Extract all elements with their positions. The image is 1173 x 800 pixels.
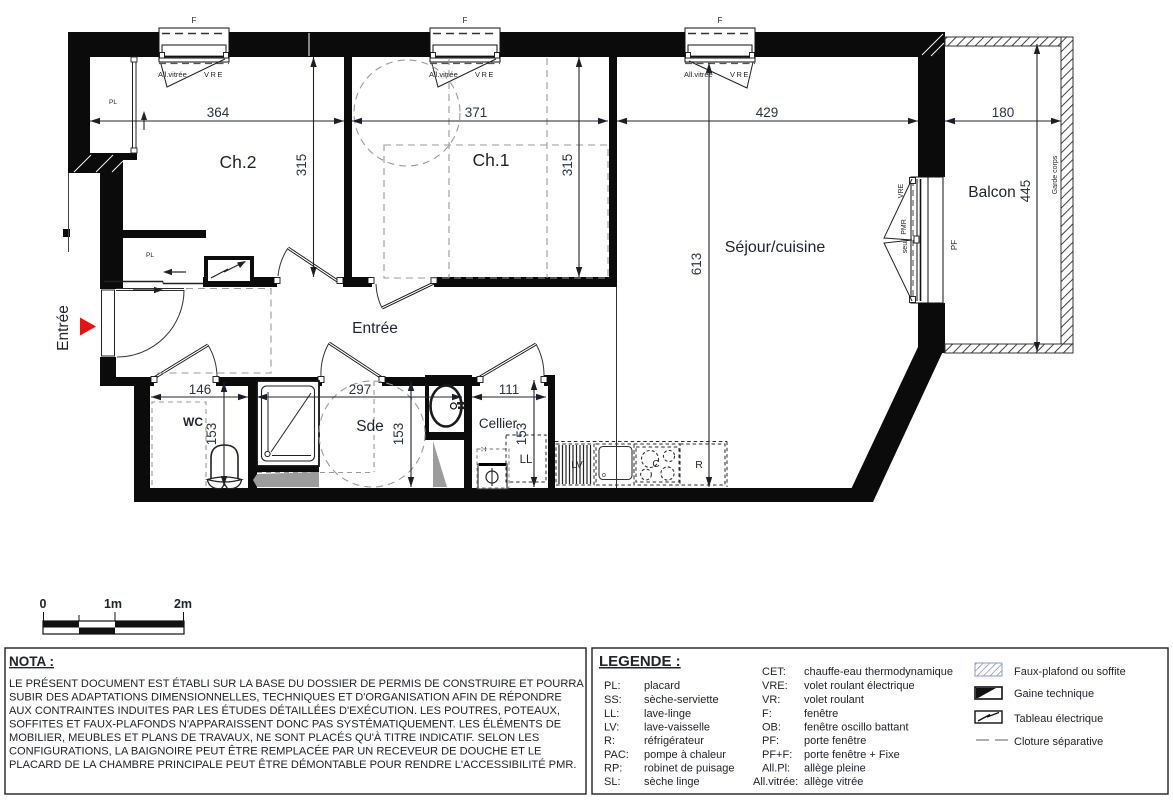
svg-text:Entrée: Entrée [55,305,72,351]
svg-text:F: F [718,16,723,25]
svg-text:allège vitrée: allège vitrée [804,776,863,788]
svg-text:AUX CONTRAINTES INDUITES PAR L: AUX CONTRAINTES INDUITES PAR LES ÉTUDES … [9,704,560,717]
svg-text:CONFIGURATIONS, LA BAIGNOIRE P: CONFIGURATIONS, LA BAIGNOIRE PEUT ÊTRE R… [9,745,541,758]
svg-text:seuil: seuil [902,238,909,253]
svg-text:Tableau électrique: Tableau électrique [1014,713,1103,725]
svg-text:PF+F:: PF+F: [762,749,792,761]
svg-text:153: 153 [204,423,219,446]
svg-text:LV:: LV: [604,722,619,734]
svg-text:SS:: SS: [604,694,622,706]
svg-text:chauffe-eau thermodynamique: chauffe-eau thermodynamique [804,666,953,678]
svg-text:PAC:: PAC: [604,749,629,761]
svg-text:All.vitrée: All.vitrée [158,70,187,79]
svg-text:Sde: Sde [356,418,384,435]
svg-text:fenêtre: fenêtre [804,708,838,720]
svg-text:lave-vaisselle: lave-vaisselle [644,722,710,734]
svg-text:VRE: VRE [204,70,224,79]
svg-text:PL: PL [146,252,154,259]
svg-text:F:: F: [762,708,772,720]
svg-text:sèche-serviette: sèche-serviette [644,694,719,706]
svg-text:LEGENDE :: LEGENDE : [599,653,681,670]
svg-text:1m: 1m [104,597,122,611]
svg-text:VRE:: VRE: [762,680,788,692]
svg-text:SUBIR DES ADAPTATIONS DIMENSIO: SUBIR DES ADAPTATIONS DIMENSIONNELLES, T… [9,691,562,704]
svg-text:Faux-plafond ou soffite: Faux-plafond ou soffite [1014,666,1126,678]
svg-text:NOTA :: NOTA : [9,654,54,669]
svg-text:371: 371 [465,105,488,120]
svg-text:F: F [192,16,197,25]
svg-text:SOFFITES ET FAUX-PLAFONDS N'AP: SOFFITES ET FAUX-PLAFONDS N'APPARAISSENT… [9,718,561,731]
svg-text:PLACARD DE LA CHAMBRE PRINCIPA: PLACARD DE LA CHAMBRE PRINCIPALE PEUT ÊT… [9,758,576,771]
svg-text:Garde corps: Garde corps [1052,155,1059,194]
svg-text:WC: WC [183,415,203,429]
svg-text:CET:: CET: [762,666,786,678]
svg-text:PL: PL [109,99,117,106]
svg-text:R:: R: [604,735,615,747]
svg-text:180: 180 [992,105,1015,120]
svg-text:VRE: VRE [475,70,495,79]
svg-text:445: 445 [1018,180,1033,203]
svg-text:LL:: LL: [604,708,619,720]
svg-text:OB:: OB: [762,722,781,734]
svg-text:LL: LL [520,454,533,466]
svg-text:PF:: PF: [762,735,779,747]
svg-text:volet roulant électrique: volet roulant électrique [804,680,915,692]
svg-text:297: 297 [349,382,372,397]
svg-text:All.Pl:: All.Pl: [762,763,790,775]
svg-text:315: 315 [294,154,309,177]
svg-text:Entrée: Entrée [352,320,398,337]
svg-text:364: 364 [207,105,230,120]
svg-text:Séjour/cuisine: Séjour/cuisine [725,239,826,256]
svg-text:All.vitrée:: All.vitrée: [753,776,798,788]
svg-text:315: 315 [560,154,575,177]
svg-text:146: 146 [189,382,212,397]
svg-text:Ch.1: Ch.1 [473,150,510,170]
svg-text:volet roulant: volet roulant [804,694,864,706]
svg-text:VRE: VRE [898,183,905,198]
svg-text:o: o [602,472,606,479]
svg-text:SL:: SL: [604,776,621,788]
svg-text:VRE: VRE [730,70,750,79]
svg-text:MOBILIER, MEUBLES ET PLANS DE: MOBILIER, MEUBLES ET PLANS DE TRAVAUX, N… [9,731,539,744]
svg-text:PF: PF [950,240,959,250]
svg-text:2m: 2m [174,597,192,611]
svg-text:allège pleine: allège pleine [804,763,866,775]
svg-text:fenêtre oscillo battant: fenêtre oscillo battant [804,722,909,734]
svg-text:PL:: PL: [604,680,621,692]
svg-text:placard: placard [644,680,680,692]
svg-text:C: C [652,459,659,470]
svg-text:LE PRÉSENT DOCUMENT EST ÉTABLI: LE PRÉSENT DOCUMENT EST ÉTABLI SUR LA BA… [9,677,584,690]
svg-text:Ch.2: Ch.2 [220,152,257,172]
svg-text:lave-linge: lave-linge [644,708,691,720]
svg-text:LV: LV [571,460,583,471]
svg-text:porte fenêtre: porte fenêtre [804,735,866,747]
svg-text:0: 0 [40,597,47,611]
svg-text:Cloture séparative: Cloture séparative [1014,736,1103,748]
svg-text:VR:: VR: [762,694,780,706]
svg-text:111: 111 [499,382,520,397]
svg-text:Balcon: Balcon [968,184,1015,201]
svg-text:153: 153 [391,423,406,446]
svg-text:pompe à chaleur: pompe à chaleur [644,749,726,761]
svg-text:porte fenêtre + Fixe: porte fenêtre + Fixe [804,749,900,761]
svg-text:Cellier: Cellier [479,416,518,431]
svg-text:réfrigérateur: réfrigérateur [644,735,704,747]
svg-text:613: 613 [689,253,704,276]
svg-text:R: R [695,459,703,471]
svg-text:PMR: PMR [901,219,908,235]
svg-text:F: F [463,16,468,25]
svg-text:sèche linge: sèche linge [644,776,700,788]
svg-text:Gaine technique: Gaine technique [1014,688,1094,700]
svg-text:robinet de puisage: robinet de puisage [644,763,735,775]
svg-text:RP:: RP: [604,763,622,775]
svg-text:429: 429 [756,105,779,120]
